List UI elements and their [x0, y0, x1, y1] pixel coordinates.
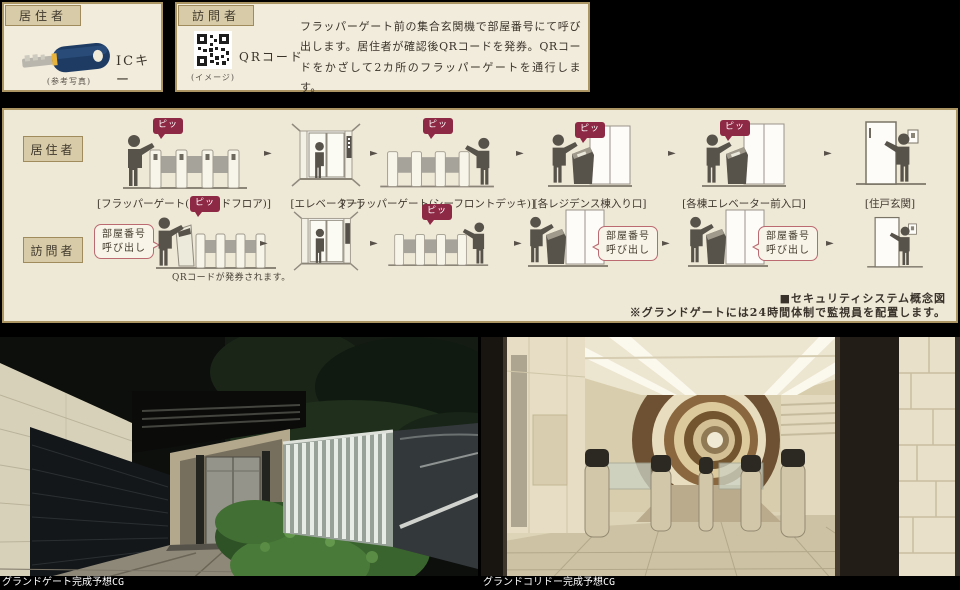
beep-bubble: ピッ — [153, 118, 183, 134]
station-flapper-gate-seafront: ピッ — [378, 126, 498, 192]
flapper-gate-icon — [119, 122, 249, 194]
elevator-icon — [292, 210, 360, 272]
ic-key-label: ICキー — [116, 50, 161, 88]
door-icon — [864, 214, 926, 272]
resident-tag: 居住者 — [5, 5, 81, 26]
guard-note: ※グランドゲートには24時間体制で監視員を配置します。 — [630, 304, 946, 320]
station-visitor-unit-entrance — [864, 214, 926, 272]
room-call-bubble: 部屋番号 呼び出し — [758, 226, 818, 261]
flow-arrow-icon: ► — [370, 148, 378, 159]
room-call-bubble: 部屋番号 呼び出し — [94, 224, 154, 259]
flow-resident-tag: 居住者 — [23, 136, 83, 162]
grand-gate-cg-art — [0, 337, 478, 590]
beep-bubble: ピッ — [575, 122, 605, 138]
flow-arrow-icon: ► — [260, 238, 268, 249]
qr-issue-note: QRコードが発券されます。 — [172, 270, 291, 283]
beep-bubble: ピッ — [720, 120, 750, 136]
station-flapper-gate-grand-floor: ピッ — [119, 122, 249, 194]
beep-bubble: ピッ — [422, 204, 452, 220]
station-residence-entrance: ピッ — [544, 120, 636, 192]
door-icon — [852, 118, 930, 190]
beep-bubble: ピッ — [190, 196, 220, 212]
station-visitor-flapper-gate: ピッ — [386, 212, 492, 270]
grand-corridor-caption: グランドコリドー完成予想CG — [481, 576, 960, 590]
qr-code-icon — [194, 31, 232, 69]
flow-arrow-icon: ► — [824, 148, 832, 159]
station-elevator-hall-entrance: ピッ — [698, 120, 790, 192]
room-call-bubble: 部屋番号 呼び出し — [598, 226, 658, 261]
resident-key-panel: 居住者 ICキー (参考写真) — [2, 2, 163, 92]
image-caption: (イメージ) — [187, 72, 239, 83]
station-unit-entrance — [852, 118, 930, 190]
visitor-description: フラッパーゲート前の集合玄関機で部屋番号にて呼び出します。居住者が確認後QRコー… — [300, 17, 581, 98]
station-elevator — [290, 122, 362, 188]
grand-corridor-photo: グランドコリドー完成予想CG — [481, 337, 960, 590]
reference-photo-caption: (参考写真) — [24, 76, 114, 87]
security-flow-panel: 居住者 ピッ [フラッパーゲート(グランドフロア)] ► — [2, 108, 958, 323]
grand-gate-caption: グランドゲート完成予想CG — [0, 576, 478, 590]
flow-arrow-icon: ► — [668, 148, 676, 159]
qr-code-label: QRコード — [239, 48, 304, 65]
flow-arrow-icon: ► — [826, 238, 834, 249]
elevator-icon — [290, 122, 362, 188]
flapper-gate-icon — [386, 212, 492, 270]
flow-visitor-tag: 訪問者 — [23, 237, 83, 263]
flow-arrow-icon: ► — [514, 238, 522, 249]
grand-corridor-cg-art — [481, 337, 960, 590]
flow-arrow-icon: ► — [264, 148, 272, 159]
flapper-gate-icon — [378, 126, 498, 192]
station-elevator — [292, 210, 360, 272]
visitor-qr-panel: 訪問者 (イメージ) QRコード フラッパーゲート前の集合玄関機で部屋番号にて呼… — [175, 2, 590, 92]
beep-bubble: ピッ — [423, 118, 453, 134]
flow-arrow-icon: ► — [370, 238, 378, 249]
flow-arrow-icon: ► — [516, 148, 524, 159]
visitor-tag: 訪問者 — [178, 5, 254, 26]
flow-arrow-icon: ► — [662, 238, 670, 249]
step-label: [住戸玄関] — [865, 196, 915, 211]
ic-key-icon — [18, 32, 118, 76]
grand-gate-photo: グランドゲート完成予想CG — [0, 337, 478, 590]
